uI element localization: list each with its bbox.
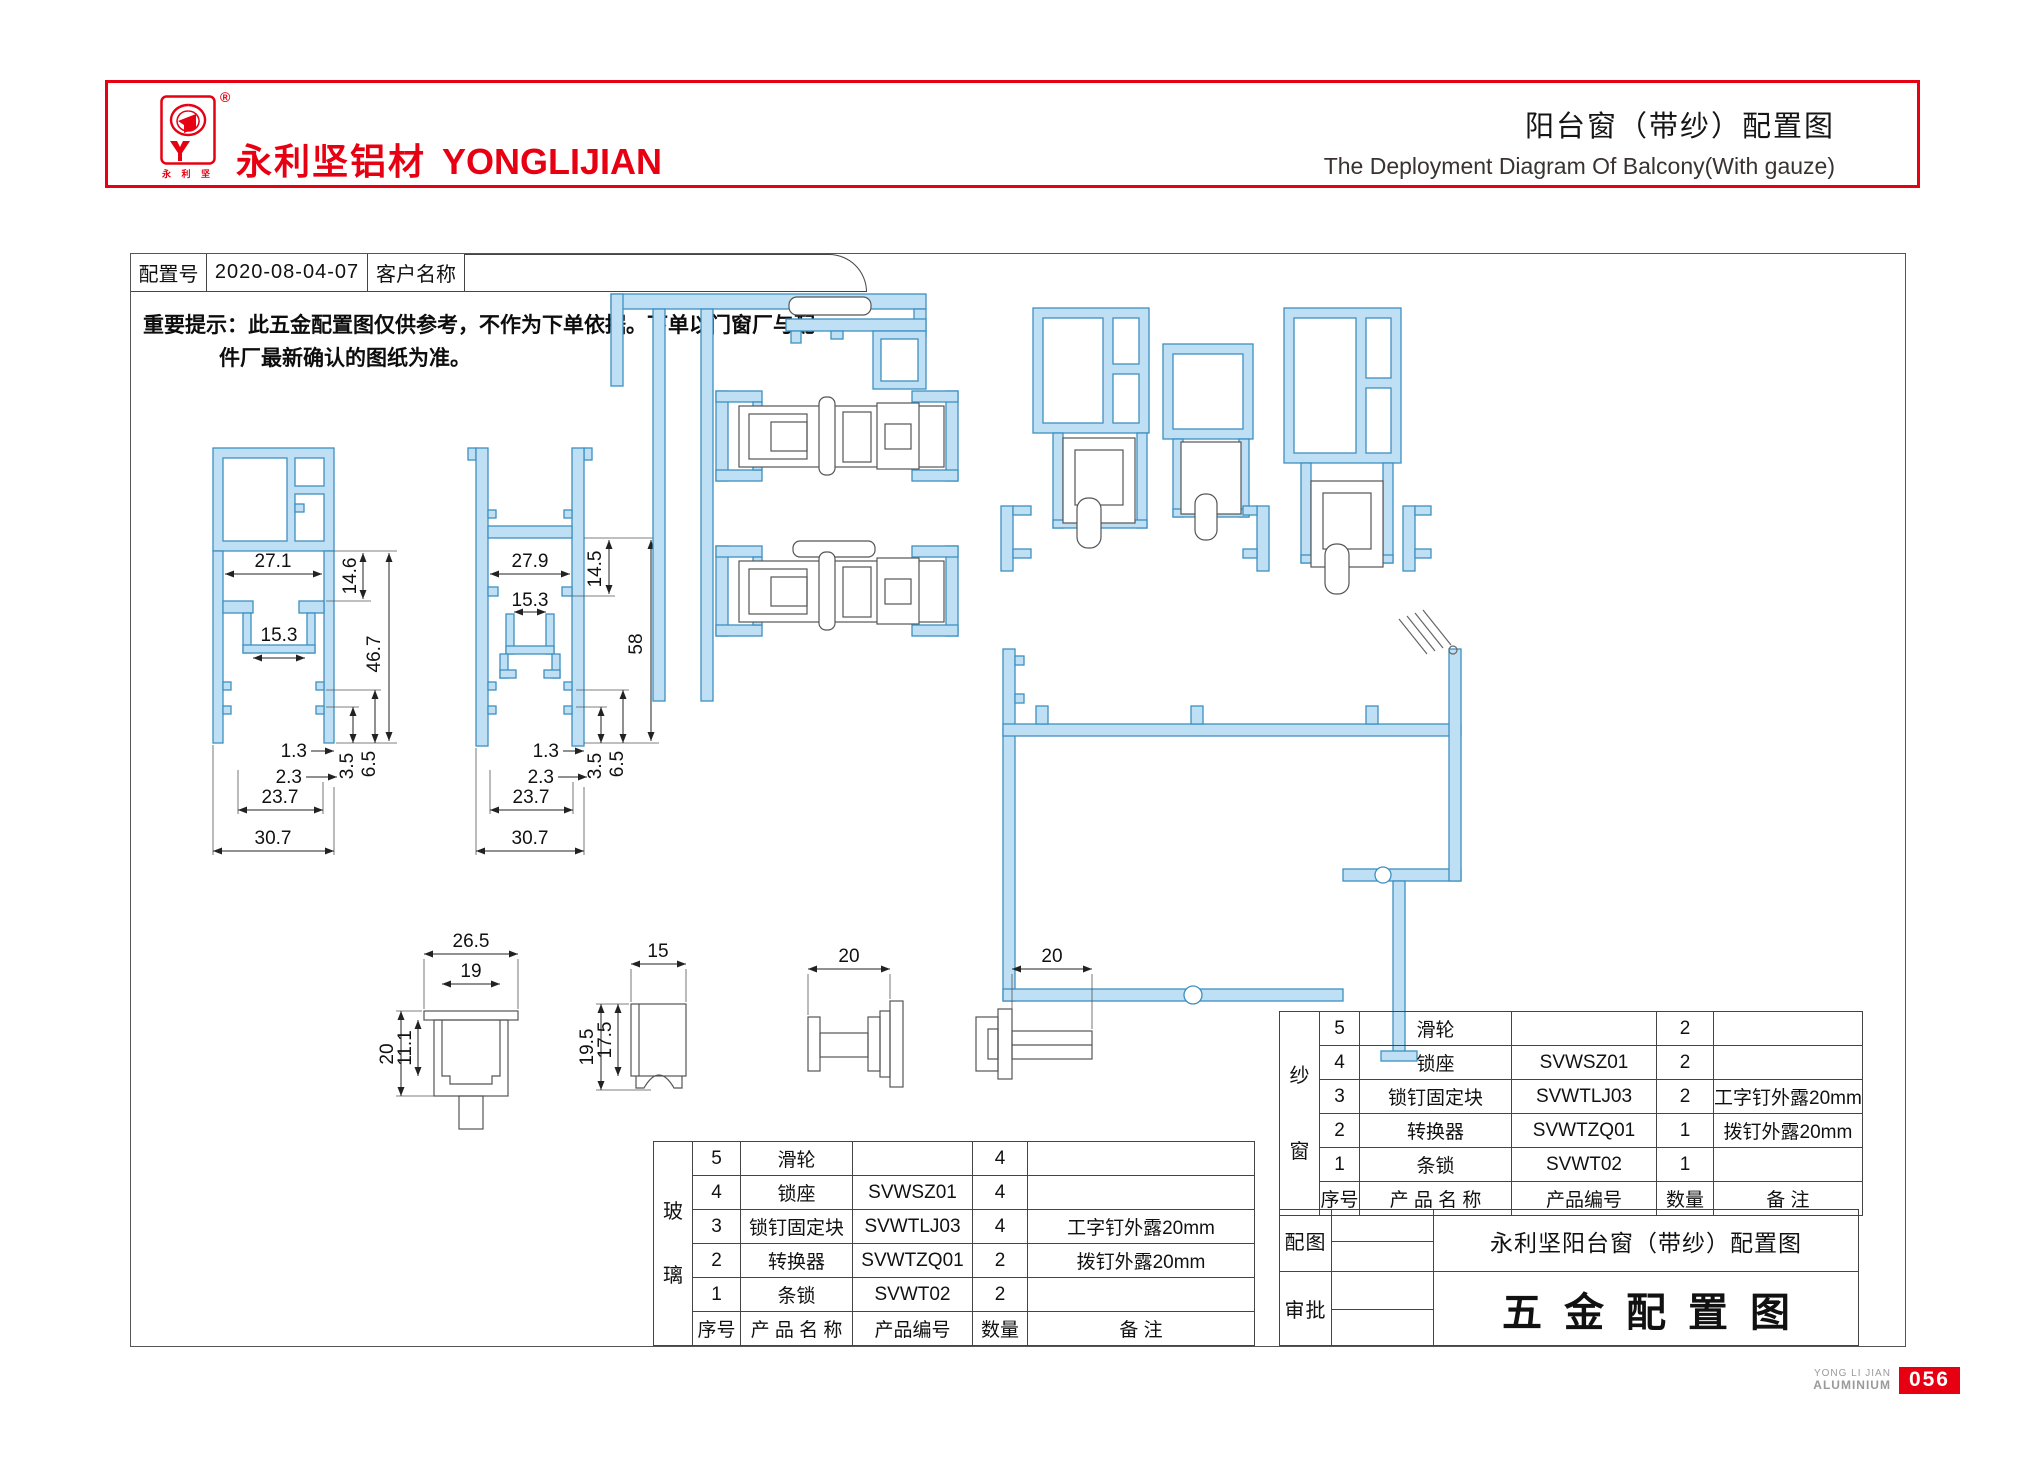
group-char: 窗 — [1290, 1142, 1310, 1162]
dim-label: 15.3 — [261, 625, 298, 646]
brand-text: 永利坚铝材 YONGLIJIAN — [236, 133, 662, 185]
cell-name: 锁座 — [1360, 1046, 1512, 1080]
dim-label: 23.7 — [262, 787, 299, 808]
cell-no: 3 — [693, 1210, 741, 1244]
table-row: 玻 璃 5 滑轮 4 — [654, 1142, 1255, 1176]
cell-qty: 1 — [1657, 1148, 1714, 1182]
page-footer: YONG LI JIAN ALUMINIUM 056 — [1813, 1367, 1960, 1394]
cell-no: 1 — [1320, 1148, 1360, 1182]
cell-note: 拨钉外露20mm — [1714, 1114, 1863, 1148]
upper-hardware-assembly — [716, 391, 958, 481]
cell-note — [1028, 1142, 1255, 1176]
group-char: 璃 — [663, 1266, 683, 1286]
cell-no: 5 — [1320, 1012, 1360, 1046]
header-no: 序号 — [693, 1312, 741, 1346]
cell-note — [1714, 1148, 1863, 1182]
title-block-row1-label: 配图 — [1280, 1210, 1332, 1272]
cell-qty: 4 — [973, 1176, 1028, 1210]
header-qty: 数量 — [973, 1312, 1028, 1346]
cell-no: 1 — [693, 1278, 741, 1312]
dim-label: 6.5 — [359, 751, 380, 777]
cell-note — [1028, 1278, 1255, 1312]
dim-label: 14.5 — [585, 551, 606, 588]
dim-label: 27.9 — [512, 551, 549, 572]
dim-label: 11.1 — [395, 1030, 416, 1066]
dim-label: 23.7 — [513, 787, 550, 808]
dim-label: 6.5 — [607, 751, 628, 777]
dim-label: 2.3 — [276, 767, 302, 788]
dim-label: 15.3 — [512, 590, 549, 611]
dim-label: 20 — [1041, 946, 1062, 967]
page-title-en: The Deployment Diagram Of Balcony(With g… — [1324, 153, 1835, 180]
profile-section-1: 27.1 15.3 14.6 46.7 1.3 2.3 23.7 30.7 — [213, 448, 397, 855]
dim-label: 1.3 — [533, 741, 559, 762]
dim-label: 3.5 — [585, 753, 606, 779]
dim-label: 26.5 — [453, 931, 490, 952]
lower-hardware-assembly — [716, 541, 958, 636]
cell-name: 条锁 — [741, 1278, 853, 1312]
cell-qty: 4 — [973, 1210, 1028, 1244]
table-row: 3 锁钉固定块 SVWTLJ03 4 工字钉外露20mm — [654, 1210, 1255, 1244]
cell-code: SVWT02 — [853, 1278, 973, 1312]
sheet-titles: 阳台窗（带纱）配置图 The Deployment Diagram Of Bal… — [1324, 103, 1835, 180]
dim-label: 17.5 — [595, 1022, 616, 1059]
part-lock-seat: 26.5 19 20 11.1 — [377, 931, 518, 1129]
dim-label: 1.3 — [281, 741, 307, 762]
title-block: 配图 永利坚阳台窗（带纱）配置图 审批 五金配置图 — [1279, 1209, 1859, 1346]
cell-note — [1714, 1012, 1863, 1046]
cell-qty: 2 — [973, 1278, 1028, 1312]
title-block-row1-signature — [1332, 1210, 1434, 1272]
profile-section-2: 27.9 15.3 14.5 58 1.3 2.3 23.7 30.7 — [468, 448, 659, 855]
dim-label: 14.6 — [340, 558, 361, 595]
dim-label: 3.5 — [337, 753, 358, 779]
registered-mark: ® — [220, 89, 230, 105]
cell-note: 工字钉外露20mm — [1028, 1210, 1255, 1244]
brand-logo-icon — [160, 95, 216, 165]
group-char: 玻 — [663, 1202, 683, 1222]
cell-name: 滑轮 — [1360, 1012, 1512, 1046]
dim-label: 15 — [647, 941, 668, 962]
cell-code — [853, 1142, 973, 1176]
header-note: 备 注 — [1028, 1312, 1255, 1346]
cell-qty: 2 — [1657, 1046, 1714, 1080]
dim-label: 20 — [377, 1043, 398, 1064]
cell-no: 2 — [1320, 1114, 1360, 1148]
config-number-value: 2020-08-04-07 — [207, 254, 368, 292]
dim-label: 20 — [838, 946, 859, 967]
footer-brand-line2: ALUMINIUM — [1813, 1379, 1891, 1393]
glass-bom-table: 玻 璃 5 滑轮 4 4 锁座 SVWSZ01 4 3 锁钉固定块 — [653, 1141, 1255, 1346]
cell-no: 5 — [693, 1142, 741, 1176]
table-header-row: 序号 产 品 名 称 产品编号 数量 备 注 — [654, 1312, 1255, 1346]
table-row: 3 锁钉固定块 SVWTLJ03 2 工字钉外露20mm — [1280, 1080, 1863, 1114]
cell-code: SVWTLJ03 — [1512, 1080, 1657, 1114]
config-number-label: 配置号 — [131, 254, 207, 292]
cell-code: SVWSZ01 — [853, 1176, 973, 1210]
brand-name-cn: 永利坚铝材 — [236, 133, 426, 185]
right-frame-section — [1001, 308, 1461, 1061]
cell-qty: 2 — [1657, 1012, 1714, 1046]
notice-line-2: 件厂最新确认的图纸为准。 — [143, 342, 815, 375]
customer-name-label: 客户名称 — [368, 254, 465, 292]
table-row: 4 锁座 SVWSZ01 2 — [1280, 1046, 1863, 1080]
cell-note — [1028, 1176, 1255, 1210]
important-notice: 重要提示：此五金配置图仅供参考，不作为下单依据。下单以门窗厂与配 件厂最新确认的… — [143, 309, 815, 375]
cell-name: 转换器 — [1360, 1114, 1512, 1148]
cell-code: SVWTZQ01 — [1512, 1114, 1657, 1148]
title-block-main-title: 五金配置图 — [1434, 1272, 1858, 1345]
dim-label: 19 — [460, 961, 481, 982]
cell-qty: 1 — [1657, 1114, 1714, 1148]
footer-brand: YONG LI JIAN ALUMINIUM — [1813, 1368, 1891, 1393]
cell-name: 锁钉固定块 — [741, 1210, 853, 1244]
group-label-glass: 玻 璃 — [654, 1142, 693, 1346]
header-code: 产品编号 — [853, 1312, 973, 1346]
dim-label: 58 — [626, 633, 647, 654]
brand-name-en: YONGLIJIAN — [442, 141, 662, 183]
cell-note: 拨钉外露20mm — [1028, 1244, 1255, 1278]
table-row: 1 条锁 SVWT02 2 — [654, 1278, 1255, 1312]
title-block-subtitle: 永利坚阳台窗（带纱）配置图 — [1434, 1210, 1858, 1272]
bottom-sill-profile — [1003, 610, 1461, 1061]
cell-no: 2 — [693, 1244, 741, 1278]
group-char: 纱 — [1290, 1066, 1310, 1086]
gauze-bom-table: 纱 窗 5 滑轮 2 4 锁座 SVWSZ01 2 3 锁钉固定块 — [1279, 1011, 1863, 1216]
logo-caption: 永 利 坚 — [156, 167, 220, 180]
brush-seal-hatch — [1399, 610, 1457, 654]
part-pull-pin: 20 — [976, 946, 1092, 1079]
dim-label: 27.1 — [255, 551, 292, 572]
table-row: 纱 窗 5 滑轮 2 — [1280, 1012, 1863, 1046]
drawing-sheet: 配置号 2020-08-04-07 客户名称 重要提示：此五金配置图仅供参考，不… — [130, 253, 1906, 1347]
header-name: 产 品 名 称 — [741, 1312, 853, 1346]
cell-qty: 4 — [973, 1142, 1028, 1176]
dim-label: 30.7 — [255, 828, 292, 849]
cell-name: 锁钉固定块 — [1360, 1080, 1512, 1114]
page-title-cn: 阳台窗（带纱）配置图 — [1324, 103, 1835, 145]
group-label-gauze: 纱 窗 — [1280, 1012, 1320, 1216]
cell-name: 转换器 — [741, 1244, 853, 1278]
header-bar: ® 永 利 坚 永利坚铝材 YONGLIJIAN 阳台窗（带纱）配置图 The … — [105, 80, 1920, 188]
part-i-pin: 20 — [808, 946, 903, 1087]
dim-label: 2.3 — [528, 767, 554, 788]
cell-name: 锁座 — [741, 1176, 853, 1210]
cell-qty: 2 — [1657, 1080, 1714, 1114]
cell-no: 4 — [693, 1176, 741, 1210]
notice-line-1: 重要提示：此五金配置图仅供参考，不作为下单依据。下单以门窗厂与配 — [143, 309, 815, 342]
table-row: 4 锁座 SVWSZ01 4 — [654, 1176, 1255, 1210]
dim-label: 19.5 — [577, 1029, 598, 1066]
title-block-row2-signature — [1332, 1272, 1434, 1345]
cell-qty: 2 — [973, 1244, 1028, 1278]
table-row: 2 转换器 SVWTZQ01 2 拨钉外露20mm — [654, 1244, 1255, 1278]
table-row: 1 条锁 SVWT02 1 — [1280, 1148, 1863, 1182]
cell-note: 工字钉外露20mm — [1714, 1080, 1863, 1114]
cell-code: SVWTZQ01 — [853, 1244, 973, 1278]
page-number-badge: 056 — [1899, 1367, 1960, 1394]
cell-no: 4 — [1320, 1046, 1360, 1080]
part-roller: 15 19.5 17.5 — [577, 941, 686, 1090]
cell-code: SVWTLJ03 — [853, 1210, 973, 1244]
brand-logo — [160, 95, 216, 165]
cell-code: SVWSZ01 — [1512, 1046, 1657, 1080]
customer-name-field — [465, 254, 867, 292]
cell-name: 条锁 — [1360, 1148, 1512, 1182]
dim-label: 30.7 — [512, 828, 549, 849]
cell-no: 3 — [1320, 1080, 1360, 1114]
title-block-row2-label: 审批 — [1280, 1272, 1332, 1345]
cell-code — [1512, 1012, 1657, 1046]
cell-note — [1714, 1046, 1863, 1080]
cell-code: SVWT02 — [1512, 1148, 1657, 1182]
table-row: 2 转换器 SVWTZQ01 1 拨钉外露20mm — [1280, 1114, 1863, 1148]
dim-label: 46.7 — [364, 636, 385, 673]
cell-name: 滑轮 — [741, 1142, 853, 1176]
